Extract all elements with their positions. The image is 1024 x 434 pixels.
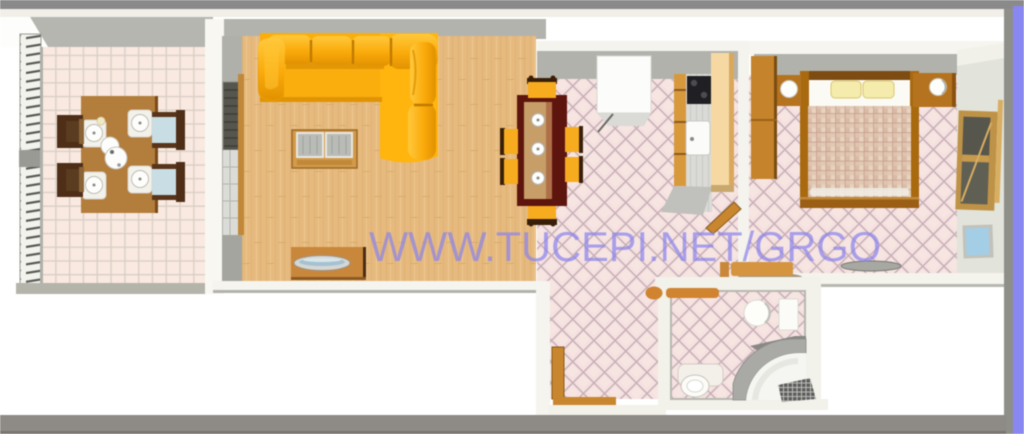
svg-text:WWW.TUCEPI.NET/GRGO: WWW.TUCEPI.NET/GRGO	[369, 223, 881, 270]
